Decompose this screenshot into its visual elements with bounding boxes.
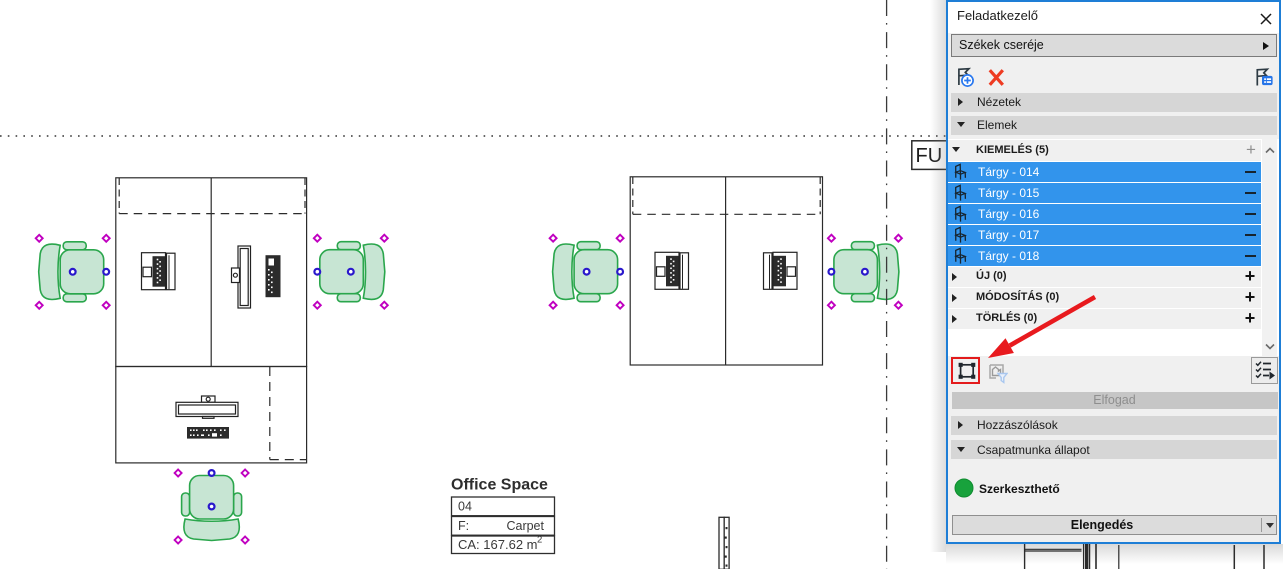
svg-text:Carpet: Carpet — [506, 519, 544, 533]
svg-text:2: 2 — [537, 535, 542, 546]
svg-text:Office Space: Office Space — [451, 477, 548, 494]
svg-text:CA: 167.62 m: CA: 167.62 m — [458, 537, 538, 552]
svg-text:F:: F: — [458, 519, 469, 533]
svg-text:04: 04 — [458, 500, 472, 514]
